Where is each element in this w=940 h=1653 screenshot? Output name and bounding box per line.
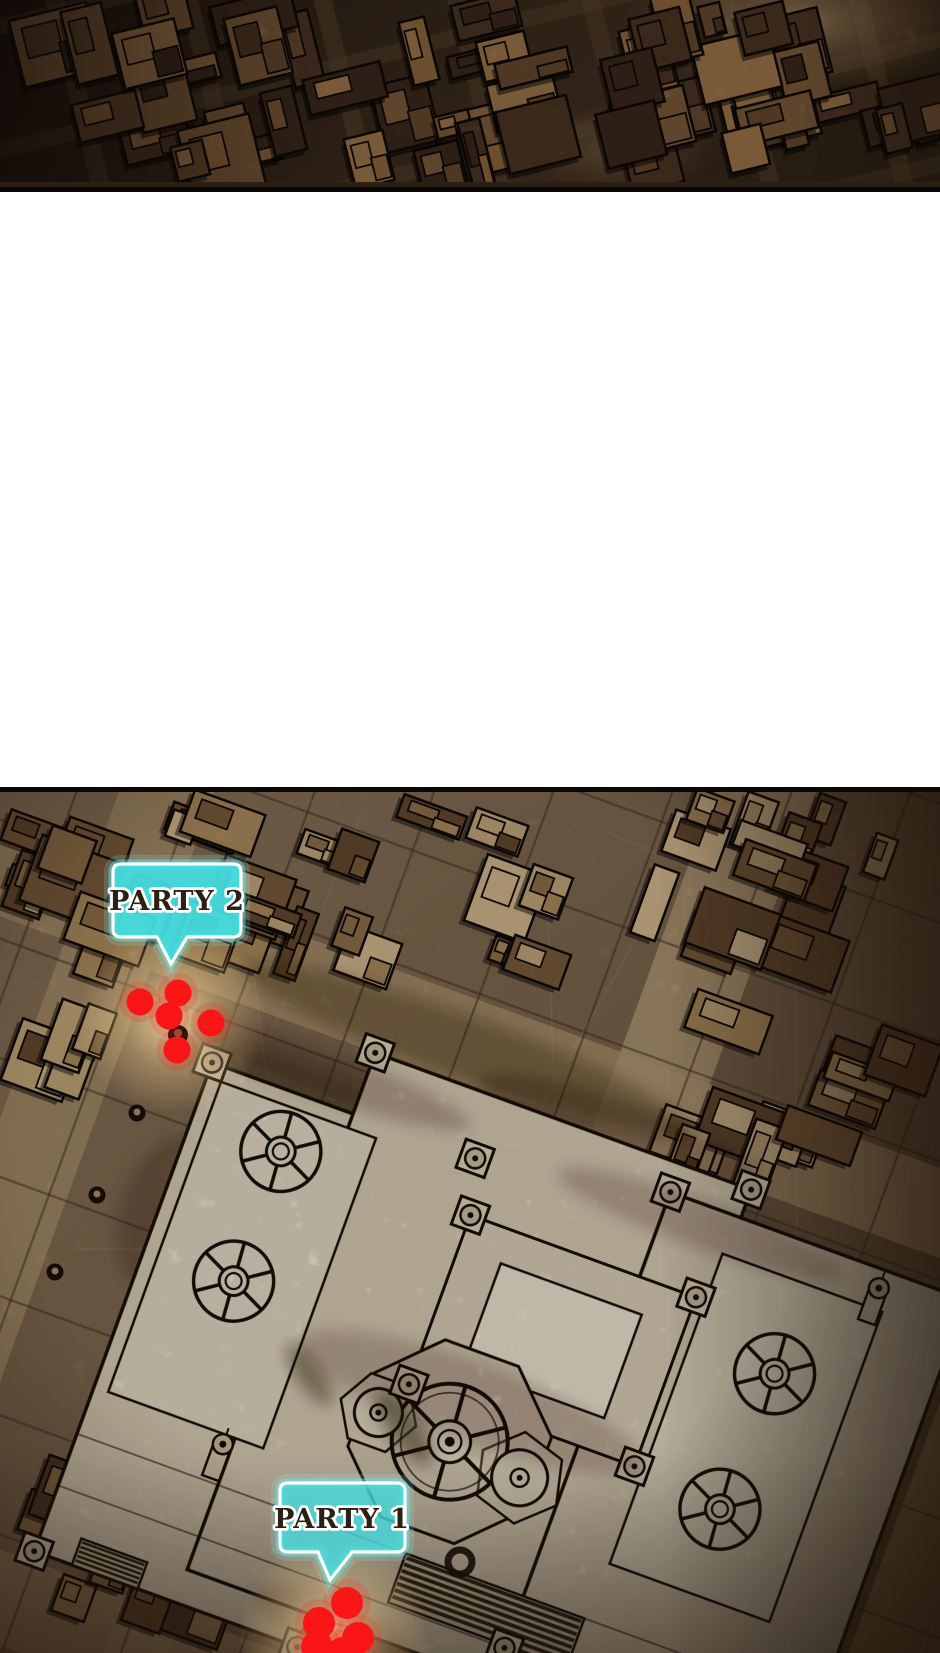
top-map-panel [0, 0, 940, 192]
party-2-label: PARTY 2 [109, 886, 245, 917]
temple-map-panel: PARTY 2 PARTY 2 PARTY 1 PARTY 1 [0, 787, 940, 1653]
vignette [0, 0, 940, 182]
comic-page: PARTY 2 PARTY 2 PARTY 1 PARTY 1 [0, 0, 940, 1653]
city-map-canvas-top [0, 0, 940, 182]
party-2-marker-dot [156, 1003, 183, 1030]
party-2-marker-dot [164, 1037, 191, 1064]
panel-gap [0, 192, 940, 787]
party-2-marker-dot [198, 1010, 225, 1037]
party-1-label: PARTY 1 [274, 1504, 410, 1535]
temple-map-canvas: PARTY 2 PARTY 2 PARTY 1 PARTY 1 [0, 792, 940, 1653]
